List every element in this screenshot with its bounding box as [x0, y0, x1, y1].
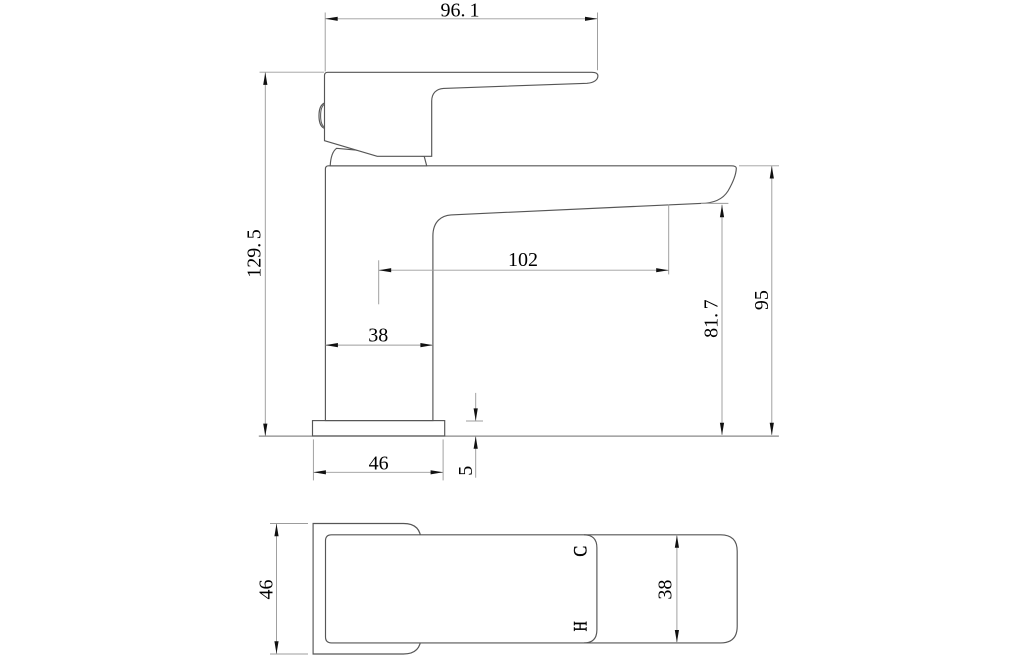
svg-text:81.7: 81.7 — [701, 299, 723, 338]
svg-text:C: C — [570, 546, 591, 557]
svg-text:129.5: 129.5 — [244, 229, 266, 278]
svg-text:H: H — [570, 621, 591, 631]
svg-text:46: 46 — [369, 453, 389, 475]
svg-text:46: 46 — [256, 580, 278, 600]
svg-text:38: 38 — [655, 580, 677, 600]
svg-text:5: 5 — [455, 466, 477, 476]
svg-text:95: 95 — [751, 290, 773, 310]
svg-text:102: 102 — [508, 249, 538, 271]
svg-text:38: 38 — [368, 325, 388, 347]
svg-text:96.1: 96.1 — [441, 0, 480, 22]
